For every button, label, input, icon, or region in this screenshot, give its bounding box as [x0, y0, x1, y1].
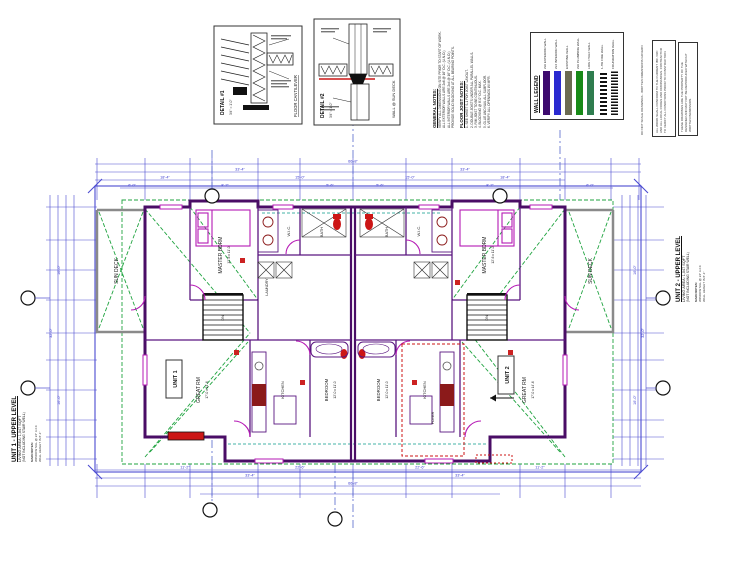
- copyright-note-box: THESE DRAWINGS ARE THE PROPERTY OF THE D…: [678, 42, 698, 136]
- general-notes-heading: GENERAL NOTES:: [432, 10, 437, 128]
- legend-swatch: [587, 71, 594, 115]
- stairs-label: DN: [484, 315, 489, 321]
- wall-legend-title: WALL LEGEND: [534, 37, 540, 113]
- code-note-box: ALL WORK SHALL CONFORM TO THE CURRENT IB…: [652, 40, 676, 137]
- dim-label: 11'-2": [180, 466, 190, 470]
- unit1-title-block: UNIT 1 - UPPER LEVEL LIVING AREA: 1,047 …: [12, 347, 42, 462]
- dim-label: 18'-4": [500, 176, 510, 180]
- dim-label: 66'-8": [348, 482, 358, 486]
- legend-entry-label: LOW / HALF WALL: [587, 29, 591, 69]
- dim-label: 33'-4": [245, 474, 255, 478]
- room-label: KITCHEN: [422, 381, 427, 399]
- wall-legend: WALL LEGEND 2x6 EXTERIOR WALL 2x4 INTERI…: [530, 32, 624, 120]
- unit-label: UNIT 2: [505, 366, 511, 383]
- drawing-sheet: SUN DECK MASTER BDRM 12'-6 x 11'-0 W.I.C…: [0, 0, 750, 574]
- dim-label: 33'-4": [460, 168, 470, 172]
- dim-label: 5'-6": [326, 184, 334, 188]
- copyright-note-text: THESE DRAWINGS ARE THE PROPERTY OF THE D…: [681, 46, 693, 132]
- room-label: SUN DECK: [588, 257, 594, 284]
- detail-1-title: DETAIL #1: [220, 90, 226, 115]
- dim-label: 11'-2": [535, 466, 545, 470]
- dim-label: 8'-2": [486, 184, 494, 188]
- room-label: MASTER BDRM: [482, 237, 488, 274]
- stairs-label: DN: [220, 315, 225, 321]
- room-size: 12'-6 x 11'-0: [491, 246, 495, 263]
- unit1-subnote: WALL HEIGHT IS 8'-1": [38, 347, 42, 462]
- room-label: LAUNDRY: [265, 278, 269, 296]
- party-wall: [351, 207, 355, 461]
- detail-2-caption: WALL @ SUN DECK: [391, 80, 396, 118]
- legend-entry-label: EXISTING WALL: [565, 29, 569, 69]
- detail-1-caption: FLOOR CANTILEVER: [293, 75, 298, 117]
- room-label: SUN DECK: [114, 257, 120, 284]
- legend-entry-label: FOUNDATION WALL: [611, 29, 615, 69]
- room-label: GREAT RM: [196, 377, 202, 403]
- joist-notes-heading: FLOOR JOIST NOTES:: [459, 10, 464, 128]
- dim-label: 22'-6": [415, 466, 425, 470]
- room-label: BATH: [384, 227, 389, 237]
- room-label: BEDROOM: [324, 378, 329, 401]
- room-size: 12'-0 x 11'-0: [385, 381, 389, 398]
- general-notes: GENERAL NOTES: VERIFY ALL DIMENSIONS ON …: [432, 10, 491, 128]
- room-size: 17'-0 x 14'-6: [531, 381, 535, 399]
- legend-swatch: [543, 71, 550, 115]
- shower-boxes: [258, 209, 448, 278]
- red-accents: [168, 258, 513, 463]
- dim-label: 15'-0": [295, 176, 305, 180]
- room-label: GREAT RM: [522, 377, 528, 403]
- code-note-text: ALL WORK SHALL CONFORM TO THE CURRENT IB…: [656, 44, 668, 133]
- room-label: BEDROOM: [376, 378, 381, 401]
- dim-label: 32'-0": [641, 328, 645, 338]
- direction-arrow: [490, 395, 514, 402]
- detail-1: DETAIL #1 3/4" = 1'-0" FLOOR CANTILEVER: [213, 25, 303, 125]
- legend-entry-label: 2x4 INTERIOR WALL: [554, 29, 558, 69]
- legend-swatch: [611, 71, 618, 115]
- room-label: KITCHEN: [280, 381, 285, 399]
- dim-label: 18'-4": [160, 176, 170, 180]
- legend-entry-label: 1-HR FIRE WALL: [600, 29, 604, 69]
- detail-2-title: DETAIL #2: [320, 93, 326, 118]
- detail-2-scale: 3/4" = 1'-0": [329, 102, 333, 118]
- unit-label: UNIT 1: [173, 370, 179, 387]
- joist-note-line: 6. VERIFY ALL OPENINGS W/ MFR.: [487, 10, 491, 128]
- room-size: 17'-0 x 14'-6: [205, 381, 209, 399]
- detail-1-blocking: [233, 87, 247, 95]
- room-label: MASTER BDRM: [218, 237, 224, 274]
- legend-swatch: [576, 71, 583, 115]
- dim-label: 8'-2": [221, 184, 229, 188]
- dim-label: 15'-0": [405, 176, 415, 180]
- dim-label: 16'-0": [57, 395, 61, 405]
- room-label: BATH: [319, 227, 324, 237]
- detail-2: DETAIL #2 3/4" = 1'-0" WALL @ SUN DECK: [313, 18, 401, 126]
- dim-label: 33'-4": [455, 474, 465, 478]
- dim-label: 66'-8": [348, 160, 358, 164]
- eave-lines: [228, 213, 487, 444]
- dim-label: 5'-6": [376, 184, 384, 188]
- dim-label: 22'-6": [295, 466, 305, 470]
- detail-1-scale: 3/4" = 1'-0": [229, 99, 233, 115]
- dim-label: 16'-0": [633, 265, 637, 275]
- dim-label: 16'-0": [57, 265, 61, 275]
- dim-label: 6'-0": [128, 184, 136, 188]
- detail-1-plate: [243, 105, 269, 110]
- legend-swatch: [565, 71, 572, 115]
- room-label: W.I.C.: [416, 226, 421, 237]
- room-label: W.I.C.: [286, 226, 291, 237]
- legend-entry-label: 2x6 EXTERIOR WALL: [543, 29, 547, 69]
- dim-label: 6'-0": [586, 184, 594, 188]
- dim-label: 32'-0": [49, 328, 53, 338]
- dim-label: 16'-0": [633, 395, 637, 405]
- unit2-title-block: UNIT 2 - UPPER LEVEL LIVING AREA: 1,047 …: [676, 187, 706, 302]
- room-size: 12'-6 x 11'-0: [227, 246, 231, 263]
- unit2-subnote: WALL HEIGHT IS 8'-1": [702, 187, 706, 302]
- room-label: FOYER: [431, 411, 435, 424]
- legend-entry-label: 2x6 PLUMBING WALL: [576, 29, 580, 69]
- legend-swatch: [554, 71, 561, 115]
- dim-label: 33'-4": [235, 168, 245, 172]
- legend-swatch: [600, 71, 607, 115]
- no-scale-note: DO NOT SCALE DRAWINGS - WRITTEN DIMENSIO…: [640, 40, 644, 135]
- room-size: 12'-0 x 11'-0: [333, 381, 337, 398]
- unit-label-boxes: [166, 356, 514, 398]
